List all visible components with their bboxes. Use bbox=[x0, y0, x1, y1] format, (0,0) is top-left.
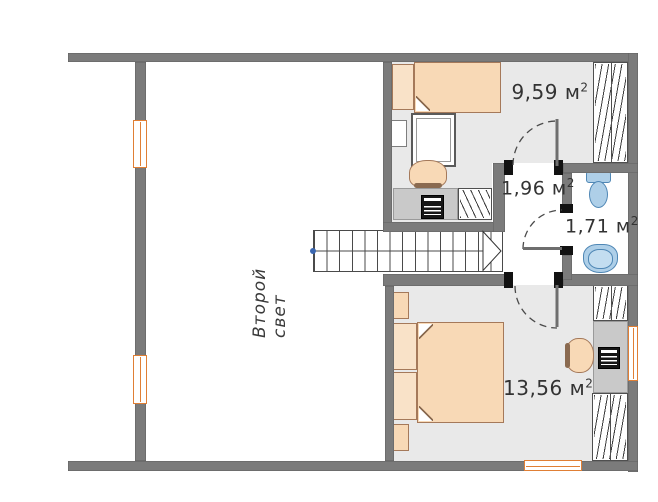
wardrobe-small-bedroom bbox=[593, 62, 628, 163]
door-jamb bbox=[504, 272, 513, 288]
room-area-value: 1,96 bbox=[501, 177, 545, 199]
computer-icon bbox=[598, 347, 620, 369]
room-area-unit: м bbox=[565, 80, 581, 104]
wardrobe-master-bottom bbox=[592, 393, 628, 461]
wardrobe-master-top bbox=[593, 285, 628, 321]
wall-small-bedroom-left bbox=[383, 62, 392, 223]
wall-master-bedroom-left bbox=[385, 286, 394, 461]
wall-right bbox=[628, 53, 638, 472]
wall-bathroom-left-lower bbox=[562, 255, 572, 280]
wall-stairs-top bbox=[383, 222, 505, 232]
room-area-value: 1,71 bbox=[565, 215, 609, 237]
window-right bbox=[628, 326, 638, 381]
stairs bbox=[313, 230, 503, 272]
room-label-master-bedroom: 13,56 м2 bbox=[503, 376, 587, 400]
wall-lower-right bbox=[563, 274, 638, 286]
wall-lower-left bbox=[383, 274, 505, 286]
room-area-sup: 2 bbox=[580, 80, 588, 94]
chair-master-bedroom bbox=[565, 338, 594, 373]
window-left-lower bbox=[133, 355, 147, 404]
door-jamb bbox=[504, 160, 513, 175]
room-area-unit: м bbox=[616, 215, 631, 237]
door-jamb bbox=[560, 246, 573, 255]
nightstand-small-bedroom bbox=[390, 120, 407, 147]
second-light-label: Второй свет bbox=[250, 228, 290, 338]
room-area-sup: 2 bbox=[567, 176, 575, 190]
floor-plan: 9,59 м2 1,96 м2 1,71 м2 13,56 м2 Второй … bbox=[0, 0, 658, 502]
double-bed-pillow bbox=[393, 323, 417, 370]
wall-mid-right bbox=[563, 163, 638, 173]
hatched-cabinet-icon bbox=[458, 188, 492, 220]
room-label-small-bedroom: 9,59 м2 bbox=[510, 80, 590, 104]
blanket-fold bbox=[419, 406, 433, 421]
door-jamb bbox=[554, 272, 563, 288]
door-jamb bbox=[560, 204, 573, 213]
door-jamb bbox=[554, 160, 563, 175]
blanket-fold bbox=[419, 324, 433, 339]
single-bed-pillow bbox=[392, 64, 414, 110]
room-area-sup: 2 bbox=[585, 376, 593, 390]
room-area-sup: 2 bbox=[631, 214, 639, 228]
toilet-bowl-icon bbox=[589, 181, 608, 208]
sink-icon bbox=[583, 244, 618, 273]
nightstand-master-top bbox=[392, 292, 409, 319]
nightstand-master-bottom bbox=[392, 424, 409, 451]
blanket-fold bbox=[416, 96, 430, 111]
window-bottom bbox=[524, 460, 582, 471]
dresser-drawers-icon bbox=[421, 195, 444, 219]
room-area-value: 13,56 bbox=[503, 376, 563, 400]
room-area-unit: м bbox=[570, 376, 586, 400]
room-area-unit: м bbox=[552, 177, 567, 199]
double-bed-pillow bbox=[393, 372, 417, 420]
chair-small-bedroom bbox=[409, 160, 447, 188]
room-label-hallway: 1,96 м2 bbox=[501, 176, 567, 199]
wall-top bbox=[68, 53, 638, 62]
room-label-bathroom: 1,71 м2 bbox=[565, 214, 631, 237]
desk-small-bedroom bbox=[411, 113, 456, 167]
room-area-value: 9,59 bbox=[511, 80, 558, 104]
window-left-upper bbox=[133, 120, 147, 168]
